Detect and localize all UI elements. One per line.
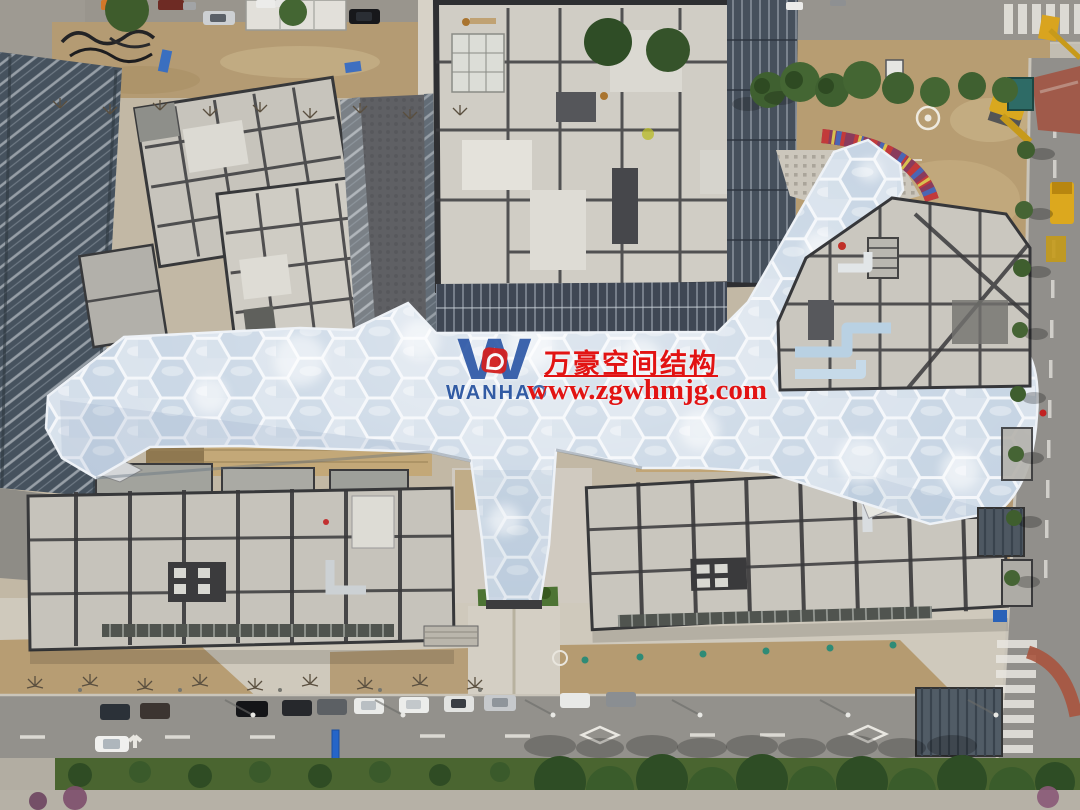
scaffold [452, 34, 504, 92]
aerial-photo: W WANHAO 万豪空间结构 www.zgwhmjg.com [0, 0, 1080, 810]
red-car-dot [1040, 410, 1047, 417]
car-moving-white [95, 736, 129, 752]
blue-container [993, 610, 1007, 622]
bottom-sidewalk [0, 790, 1080, 810]
alley [340, 93, 440, 341]
roof-c [79, 245, 166, 347]
vent-block [168, 562, 226, 602]
blossom-tree [63, 786, 87, 810]
scene-canvas [0, 0, 1080, 810]
vent-block-2 [690, 557, 747, 591]
